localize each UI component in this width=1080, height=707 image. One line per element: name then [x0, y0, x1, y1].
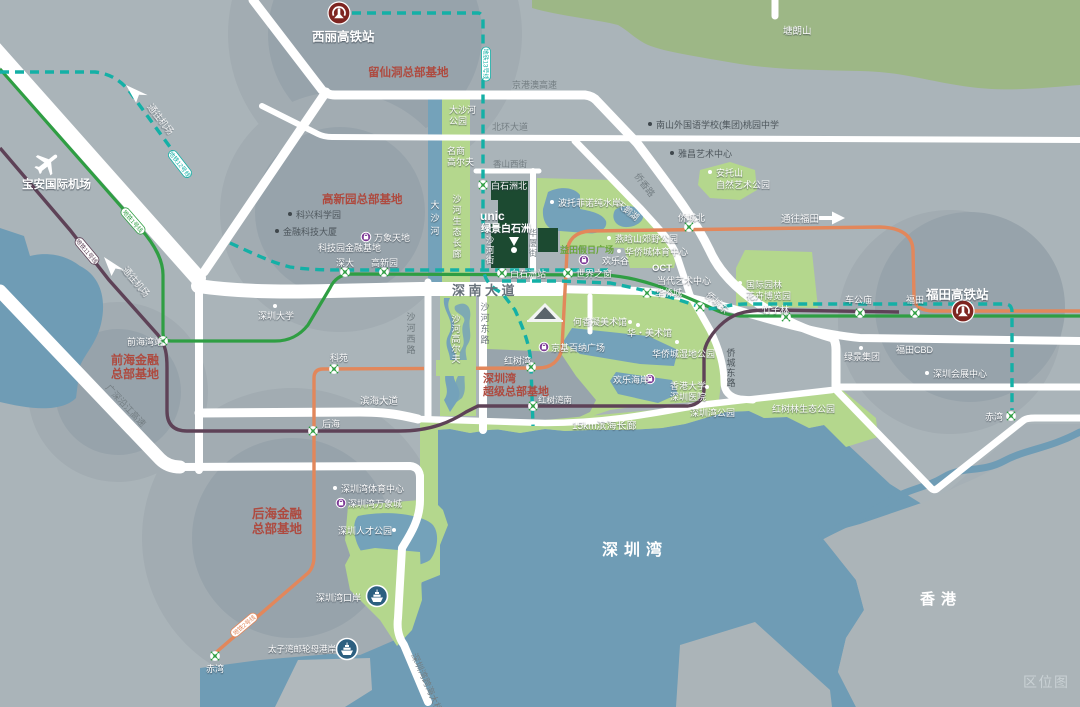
svg-text:侨城东路: 侨城东路: [726, 347, 735, 388]
svg-text:科兴科学园: 科兴科学园: [296, 209, 341, 220]
svg-text:西丽高铁站: 西丽高铁站: [312, 29, 375, 44]
svg-text:塘朗山: 塘朗山: [783, 25, 812, 37]
svg-text:太子湾邮轮母港岸: 太子湾邮轮母港岸: [268, 644, 337, 654]
svg-text:深圳会展中心: 深圳会展中心: [933, 368, 987, 379]
svg-text:红树林生态公园: 红树林生态公园: [772, 403, 835, 414]
svg-text:留仙洞总部基地: 留仙洞总部基地: [368, 65, 449, 79]
svg-text:unic: unic: [480, 209, 505, 223]
svg-text:华・美术馆: 华・美术馆: [627, 327, 672, 338]
svg-text:万象天地: 万象天地: [374, 232, 410, 243]
svg-text:大沙河: 大沙河: [449, 104, 476, 115]
svg-text:绿景白石洲: 绿景白石洲: [481, 222, 531, 235]
svg-text:赤湾: 赤湾: [206, 663, 224, 674]
svg-text:华侨城: 华侨城: [655, 287, 682, 298]
svg-text:深圳湾: 深圳湾: [602, 540, 668, 559]
svg-text:安托山: 安托山: [716, 167, 743, 178]
svg-text:深圳湾公园: 深圳湾公园: [690, 407, 735, 418]
svg-text:白石洲站: 白石洲站: [510, 268, 546, 279]
svg-text:香港: 香港: [920, 590, 962, 608]
svg-text:金融科技大厦: 金融科技大厦: [283, 226, 337, 237]
svg-text:益田假日广场: 益田假日广场: [560, 244, 614, 255]
svg-text:当代艺术中心: 当代艺术中心: [657, 275, 711, 286]
svg-text:北环大道: 北环大道: [492, 121, 528, 132]
svg-text:雅昌艺术中心: 雅昌艺术中心: [678, 148, 732, 159]
svg-text:香港大学: 香港大学: [670, 380, 706, 391]
svg-text:高新园总部基地: 高新园总部基地: [322, 192, 403, 206]
svg-text:欢乐谷: 欢乐谷: [602, 255, 629, 266]
svg-text:车公庙: 车公庙: [845, 294, 872, 305]
svg-text:后海: 后海: [322, 418, 340, 429]
svg-text:沙河高尔夫: 沙河高尔夫: [451, 314, 460, 364]
svg-text:侨城北: 侨城北: [678, 212, 705, 223]
svg-text:前海金融: 前海金融: [111, 352, 159, 367]
svg-text:后海金融: 后海金融: [252, 506, 303, 521]
svg-text:科苑: 科苑: [330, 352, 348, 363]
svg-text:自然艺术公园: 自然艺术公园: [716, 179, 770, 190]
svg-text:深大: 深大: [336, 257, 354, 268]
svg-text:香山西街: 香山西街: [493, 159, 528, 169]
svg-text:名商: 名商: [447, 145, 465, 156]
svg-text:前海湾站: 前海湾站: [127, 336, 163, 347]
svg-text:深圳湾: 深圳湾: [483, 371, 516, 385]
svg-text:通往福田: 通往福田: [781, 213, 819, 225]
svg-text:沙河西路: 沙河西路: [406, 312, 415, 355]
svg-text:区位图: 区位图: [1023, 674, 1070, 690]
svg-text:何香凝美术馆: 何香凝美术馆: [573, 316, 627, 327]
svg-text:竹子林: 竹子林: [762, 304, 789, 315]
svg-text:绿景集团: 绿景集团: [844, 351, 880, 362]
svg-text:白石洲北: 白石洲北: [491, 180, 527, 191]
svg-text:红树湾: 红树湾: [504, 355, 531, 366]
svg-text:沙河东路: 沙河东路: [480, 302, 489, 345]
svg-text:世界之窗: 世界之窗: [576, 268, 612, 279]
svg-text:沙河街: 沙河街: [486, 235, 495, 265]
svg-text:地铁13号线: 地铁13号线: [482, 49, 490, 80]
svg-text:深圳湾体育中心: 深圳湾体育中心: [341, 483, 404, 494]
svg-text:深圳湾万象城: 深圳湾万象城: [348, 498, 402, 509]
svg-text:滨海大道: 滨海大道: [360, 395, 399, 407]
svg-text:福田CBD: 福田CBD: [896, 344, 934, 355]
svg-text:京基百纳广场: 京基百纳广场: [551, 342, 605, 353]
svg-text:红树湾南: 红树湾南: [538, 395, 572, 405]
svg-text:国际园林: 国际园林: [746, 279, 782, 290]
svg-text:福田: 福田: [906, 294, 924, 305]
svg-text:高尔夫: 高尔夫: [447, 156, 474, 167]
svg-text:深圳医院: 深圳医院: [670, 391, 706, 402]
svg-text:燕晗山郊野公园: 燕晗山郊野公园: [615, 233, 678, 244]
svg-text:科技园金融基地: 科技园金融基地: [318, 242, 381, 253]
svg-text:福田高铁站: 福田高铁站: [925, 287, 989, 302]
svg-text:OCT: OCT: [652, 263, 672, 274]
svg-text:大沙河: 大沙河: [430, 199, 439, 236]
svg-text:宝安国际机场: 宝安国际机场: [22, 177, 91, 191]
svg-text:深圳湾口岸: 深圳湾口岸: [316, 592, 361, 603]
svg-text:15km滨海长廊: 15km滨海长廊: [572, 419, 636, 432]
svg-text:深圳人才公园: 深圳人才公园: [338, 525, 392, 536]
svg-text:华侨城体育中心: 华侨城体育中心: [625, 246, 688, 257]
svg-text:华侨城湿地公园: 华侨城湿地公园: [652, 348, 715, 359]
svg-text:南山外国语学校(集团)桃园中学: 南山外国语学校(集团)桃园中学: [656, 119, 779, 130]
svg-text:赤湾: 赤湾: [985, 411, 1003, 422]
svg-text:波托菲诺纯水岸: 波托菲诺纯水岸: [558, 197, 621, 208]
svg-text:京港澳高速: 京港澳高速: [512, 79, 557, 90]
svg-text:花卉博览园: 花卉博览园: [746, 290, 791, 301]
svg-text:高新园: 高新园: [371, 257, 398, 268]
svg-text:总部基地: 总部基地: [111, 366, 159, 381]
svg-text:公园: 公园: [449, 116, 467, 126]
svg-text:深圳大学: 深圳大学: [258, 310, 294, 321]
svg-text:沙河生态长廊: 沙河生态长廊: [452, 194, 461, 259]
svg-text:深南大道: 深南大道: [452, 283, 518, 298]
svg-text:总部基地: 总部基地: [252, 521, 303, 536]
svg-text:欢乐海岸: 欢乐海岸: [613, 374, 649, 385]
